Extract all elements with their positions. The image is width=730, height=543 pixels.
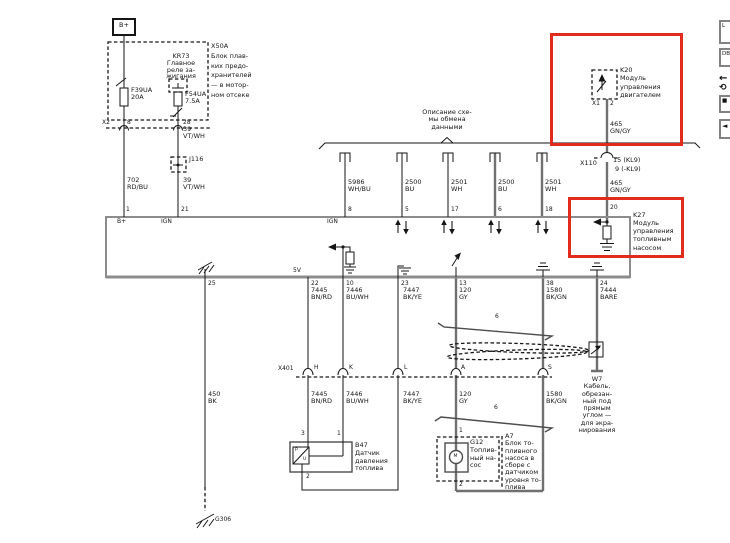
- x401-connectors: [303, 369, 548, 375]
- junction-j116-label: J116: [189, 156, 203, 163]
- g12-pin-1: 1: [459, 428, 463, 435]
- module-pin: 8: [348, 207, 352, 214]
- k27-label: K27 Модуль управления топливным насосом: [633, 211, 674, 252]
- wire-120-lower-label: 120 GY: [459, 391, 471, 406]
- module-pin: 6: [498, 207, 502, 214]
- x401-pin: K: [349, 365, 353, 372]
- b47-pin-1: 1: [337, 431, 341, 438]
- connector-x110-label: X110: [580, 160, 597, 167]
- module-internal-5v: 5V: [293, 268, 301, 275]
- toolbar-button-stop[interactable]: ■: [719, 95, 730, 113]
- wire-1580-upper-label: 1580 BK/GN: [546, 287, 567, 302]
- ground-pin10: [344, 267, 356, 273]
- module-pin: 18: [545, 207, 553, 214]
- k20-label: K20 Модуль управления двигателем: [620, 66, 661, 100]
- wire-450-label: 450 BK: [208, 391, 220, 406]
- wire-7447-upper-label: 7447 BK/YE: [403, 287, 422, 302]
- module-internal-ign2: IGN: [327, 219, 338, 226]
- rotate-icon[interactable]: ⟲: [719, 83, 727, 93]
- bus-wire-label: 2501 WH: [545, 179, 562, 194]
- g12-label: G12 Топлив- ный на- сос: [470, 439, 497, 470]
- b47-pin-3: 3: [301, 431, 305, 438]
- x110-pin-9: 9 (-KL9): [615, 166, 641, 173]
- x2-pin-8: 8: [127, 120, 131, 127]
- module-pin: 21: [181, 207, 189, 214]
- wire-120-upper-label: 120 GY: [459, 287, 471, 302]
- fuse-box-x50a-label: X50A Блок плав- ких предо- хранителей — …: [211, 42, 252, 101]
- x401-pin: L: [404, 365, 407, 372]
- toolbar-button-layers[interactable]: L: [719, 20, 730, 44]
- layers-icon: L: [722, 23, 725, 29]
- bus-wire-label: 2500 BU: [405, 179, 422, 194]
- x401-pin: A: [461, 365, 465, 372]
- wire-7445-lower-label: 7445 BN/RD: [311, 391, 332, 406]
- harness-count-b: 6: [494, 405, 498, 412]
- shield-ellipse-1: [449, 341, 589, 355]
- bus-wire-label: 2501 WH: [451, 179, 468, 194]
- g12-motor-m: M: [454, 454, 458, 459]
- x401-pin: S: [548, 365, 552, 372]
- wire-39-lower-label: 39 VT/WH: [183, 177, 205, 192]
- bus-forks: [340, 153, 547, 162]
- resistor-symbol: [346, 252, 354, 264]
- k20-connector-x1: X1: [592, 101, 600, 108]
- data-arrows: [395, 220, 549, 235]
- a7-label: A7 Блок то- пливного насоса в сборе с да…: [505, 433, 541, 491]
- module-pin: 20: [610, 205, 618, 212]
- g12-pin-2: 2: [459, 482, 463, 489]
- bus-wire-label: 2500 BU: [498, 179, 515, 194]
- wire-7447-lower-label: 7447 BK/YE: [403, 391, 422, 406]
- relay-kr73-label: KR73 Главное реле за- жигания: [158, 53, 204, 80]
- module-pin: 17: [451, 207, 459, 214]
- connector-x401-label: X401: [278, 366, 294, 373]
- k20-pin-2: 2: [610, 101, 614, 108]
- module-pin: 1: [126, 207, 130, 214]
- connector-x2-label: X2: [102, 120, 110, 127]
- wire-702-label: 702 RD/BU: [127, 177, 148, 192]
- toolbar-button-back[interactable]: ◄: [719, 119, 730, 139]
- chassis-ground-pin25: [198, 262, 214, 277]
- toolbar-button-db[interactable]: DB: [719, 48, 730, 67]
- module-internal-bplus: B+: [117, 219, 126, 226]
- w7-label: W7 Кабель, обрезан- ный под прямым углом…: [573, 376, 621, 434]
- ground-pin38: [536, 263, 550, 277]
- wiring-diagram-canvas: B+ F39UA 20A KR73 Главное реле за- жиган…: [0, 0, 730, 543]
- g306-ground-symbol: [196, 514, 214, 528]
- b47-symbol-u: U: [303, 457, 306, 462]
- wire-39-upper-label: 39 VT/WH: [183, 126, 205, 141]
- fuse-f54-symbol: [174, 92, 182, 106]
- bus-wire-label: 5986 WH/BU: [348, 179, 371, 194]
- b47-label: B47 Датчик давления топлива: [355, 442, 388, 473]
- ground-pin23: [398, 266, 411, 277]
- b47-pin-2: 2: [306, 474, 310, 481]
- module-pin: 5: [405, 207, 409, 214]
- fuse-f39-symbol: [120, 88, 128, 106]
- wire-465-lower-label: 465 GN/GY: [610, 180, 631, 195]
- wire-1580-lower-label: 1580 BK/GN: [546, 391, 567, 406]
- g306-label: G306: [215, 517, 231, 524]
- fuse-f54-label: F54UA 7.5A: [185, 91, 206, 106]
- wire-465-upper-label: 465 GN/GY: [610, 121, 631, 136]
- module-pin: 25: [208, 281, 216, 288]
- wire-7446-upper-label: 7446 BU/WH: [346, 287, 369, 302]
- module-internal-ign: IGN: [161, 219, 172, 226]
- triangle-left-icon: ◄: [722, 122, 727, 130]
- x110-pin-15: 15 (KL9): [613, 157, 640, 164]
- b47-symbol-p: P: [295, 448, 298, 453]
- x110-connector: [601, 153, 613, 159]
- bus-title: Описание схе- мы обмена данными: [407, 109, 487, 131]
- x401-pin: H: [314, 365, 319, 372]
- harness-count-a: 6: [495, 314, 499, 321]
- battery-label: B+: [112, 22, 136, 29]
- module-box: [106, 217, 630, 277]
- ground-pin24: [590, 263, 604, 277]
- stop-icon: ■: [722, 98, 727, 104]
- wire-7444-label: 7444 BARE: [600, 287, 618, 302]
- db-icon: DB: [722, 51, 730, 57]
- wire-7446-lower-label: 7446 BU/WH: [346, 391, 369, 406]
- fuse-f39-label: F39UA 20A: [131, 87, 152, 102]
- wire-7445-upper-label: 7445 BN/RD: [311, 287, 332, 302]
